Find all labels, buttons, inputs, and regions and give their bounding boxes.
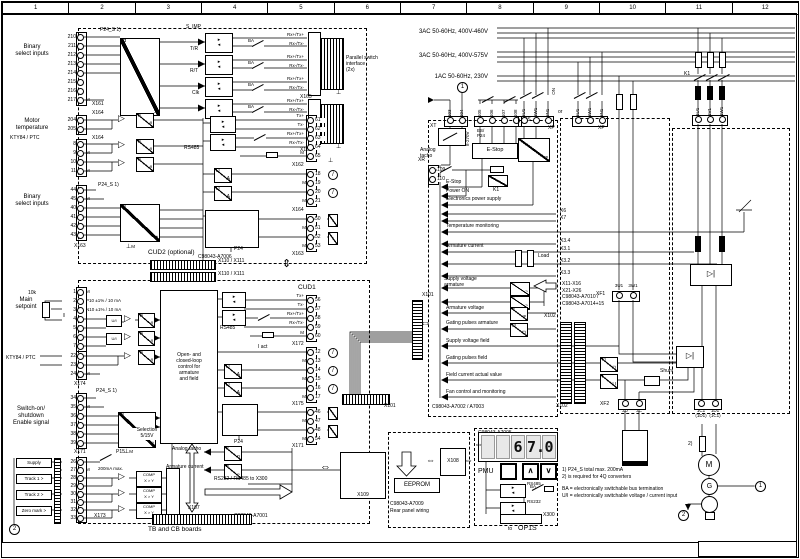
terminal-strip-1u1: 1U11V11W1 (692, 103, 728, 123)
terminal: 28 (62, 474, 90, 482)
pulse-encoder-icon (701, 496, 718, 513)
rs485-transceiver (210, 134, 236, 151)
motor-temperature-label: Motor temperature (6, 118, 58, 132)
k1-resistor (490, 166, 504, 173)
xref-x7: X7 (560, 216, 566, 222)
terminal-circle (77, 307, 84, 314)
terminal: M53 (294, 242, 327, 251)
terminal: 1C1(1D1) (694, 400, 708, 419)
encoder-shaft (705, 512, 715, 520)
transceiver-block (205, 55, 233, 75)
xref-x11-x16: X11-X16 (562, 282, 581, 288)
termination-resistor (266, 152, 278, 158)
op1s-label: OP1S (518, 525, 537, 533)
terminal-circle (77, 34, 84, 41)
pmu-down-button: ∨ (540, 463, 557, 480)
rx-tx-minus: Rx-/Tx- (264, 107, 304, 112)
encoder-zeromark-label: Zero mark > (16, 506, 52, 516)
terminal: 52 (294, 233, 327, 242)
seven-segment-digit: 7. (526, 435, 541, 459)
dac-block: DA (224, 382, 242, 397)
terminal: 2P10 ±1% / 10 mA (62, 297, 121, 306)
terminal-circle (77, 205, 84, 212)
comparator-block: COMPX > Y (136, 471, 162, 487)
terminal: 211 (62, 42, 90, 51)
connector-x164-label-a: X164 (92, 111, 104, 117)
terminal-circle (77, 404, 84, 411)
rx-tx-plus: Rx+/Tx+ (264, 32, 304, 37)
connector-x300 (500, 514, 542, 524)
kty84-ptc-label: KTY84 / PTC (10, 136, 39, 142)
connector-x173-label: X173 (94, 514, 106, 520)
xref-x21-x26: X21-X26 (562, 289, 581, 295)
terminal-circle (77, 150, 84, 157)
ba-label: BA (248, 82, 254, 87)
terminal: 213 (62, 60, 90, 69)
ribbon-x102 (560, 322, 572, 404)
binary-select-inputs-label-2: Binary select inputs (6, 194, 58, 208)
terminal-circle (77, 413, 84, 420)
load-resistor (515, 250, 522, 267)
electronics-supply-row-label: Electronics power supply (446, 197, 501, 203)
terminal-circle (77, 141, 84, 148)
terminal-strip-x174b: 222324M (62, 352, 90, 379)
gating-pulses-armature-label: Gating pulses armature (446, 321, 498, 327)
terminal: 22 (62, 352, 90, 361)
voltage-sense-block: ~~ (510, 282, 530, 296)
terminal: 1V1 (704, 103, 716, 123)
tb-cb-boards-label: TB and CB boards (148, 526, 201, 533)
terminal: 65 (294, 152, 327, 161)
terminal: 3W1 (626, 280, 640, 299)
rs485-transceiver (500, 484, 526, 498)
terminal-circle (307, 324, 314, 331)
ground-icon: ⊥ (336, 144, 341, 150)
terminal-circle (307, 394, 314, 401)
fuse-icon (707, 52, 714, 68)
terminal-circle (77, 126, 84, 133)
terminal: 10 (62, 158, 90, 167)
connector-x164-label-b: X164 (92, 136, 104, 142)
commutation-reactor (719, 86, 725, 100)
terminal: 59 (294, 323, 327, 332)
xref-x34: X3.4 (560, 239, 570, 245)
armature-current-label: Armature current (166, 465, 204, 471)
rx-tx-plus: Rx+/Tx+ (264, 54, 304, 59)
or-label: or (558, 110, 562, 116)
terminal-circle (77, 459, 84, 466)
terminal: 20 (294, 188, 327, 197)
armature-current-row-label: Armature current (446, 244, 484, 250)
terminal-circle (429, 176, 436, 183)
terminal-circle (77, 431, 84, 438)
motor-icon: M (698, 454, 720, 476)
amplifier-icon (118, 504, 125, 513)
meter-icon (328, 384, 338, 394)
signal-rt-label: R/T (190, 69, 198, 75)
fan-control-label: Fan control and monitoring (446, 390, 505, 396)
circled-2-icon: 2 (9, 524, 20, 535)
p24-label-2: P24 (234, 440, 243, 446)
terminal-circle (77, 334, 84, 341)
transceiver-block (205, 77, 233, 97)
ribbon-x101 (342, 394, 390, 405)
terminal-circle (307, 144, 314, 151)
amplifier-icon (118, 158, 125, 167)
binary-input-squarer: ⊓⊓ (120, 204, 160, 242)
terminal-strip-x161: 210211212213214215216217M (62, 33, 90, 105)
terminal-circle (77, 214, 84, 221)
terminal-strip-x163-out: 50M5152M53 (294, 215, 327, 251)
board-label-a7010-sub: C98043-A7014+15 (562, 302, 604, 308)
signal-tr-label: T/R (190, 47, 198, 53)
terminal: 5N1 (596, 104, 608, 124)
tacho-adc-block: #n (224, 446, 242, 461)
control-core-block: Open- and closed-loop control for armatu… (160, 290, 218, 444)
note-2: 2) is required for 4Q converters (562, 475, 631, 481)
relay-coil-icon (328, 214, 338, 227)
terminal: 5W1 (530, 104, 542, 124)
rs232-label: RS232 (527, 499, 541, 504)
encoder-supply-label: Supply (16, 458, 52, 468)
terminal: 5U1 (572, 104, 584, 124)
current-transformer (695, 236, 701, 252)
rx-tx-minus: Rx-/Tx- (264, 63, 304, 68)
rs485-transceiver (222, 292, 246, 308)
connector-x108: X108 (440, 448, 466, 476)
terminal-circle (307, 306, 314, 313)
ribbon-x110-x111 (150, 260, 216, 270)
terminal: 64 (294, 143, 327, 152)
terminal: 34 (62, 394, 90, 403)
ribbon-x110-x111 (150, 272, 216, 282)
terminal-circle (429, 167, 436, 174)
terminal-circle (77, 187, 84, 194)
terminal-circle (307, 198, 314, 205)
terminal-circle (77, 440, 84, 447)
relay-driver-block (205, 210, 259, 248)
adc-block: n# (136, 139, 154, 154)
terminal-circle (77, 232, 84, 239)
terminal-circle (307, 427, 314, 434)
seven-segment-digit: 0 (542, 435, 556, 459)
supply-voltage-field-label: Supply voltage field (446, 339, 489, 345)
shunt-label: Shunt (660, 369, 673, 375)
terminal-circle (307, 436, 314, 443)
tacho-scaling-block (438, 128, 466, 146)
comparator-block: COMPX > Y (136, 487, 162, 503)
terminal: 1W1 (716, 103, 728, 123)
es-p24-label: ES/ P24 (477, 128, 485, 138)
ribbon-x107 (152, 514, 252, 525)
terminal-circle (77, 61, 84, 68)
terminal-circle (616, 292, 623, 299)
terminal-strip-xf2: 3D3C (618, 400, 646, 414)
bus-arrow-icon: ⇔ (474, 440, 483, 449)
adc-block: n# (136, 113, 154, 128)
connector-x102-label-b: X102 (556, 404, 568, 410)
terminal-strip-x164-out: 18M1920M21 (294, 170, 327, 206)
terminal: M15 (294, 375, 327, 384)
terminal: 210 (62, 33, 90, 42)
terminal-circle (719, 116, 726, 123)
ground-icon: ⊥M (124, 449, 133, 455)
terminal-circle (77, 491, 84, 498)
rs485-transceiver (222, 310, 246, 326)
terminal-strip-xp2: 5U15W15N1 (572, 104, 608, 124)
terminal-circle (545, 117, 552, 124)
terminal: 30 (62, 490, 90, 498)
terminal-strip-x164-temp: 204205 (62, 116, 86, 134)
mains-1ac-230-label: 1AC 50-60Hz, 230V (408, 74, 488, 81)
ba-label: BA (530, 484, 536, 489)
terminal: 12 (294, 348, 327, 357)
iact-label: I act (258, 345, 267, 351)
p24-label: P24 (234, 247, 243, 253)
terminal-circle (521, 117, 528, 124)
shunt-resistor (644, 376, 660, 386)
terminal: 57 (294, 305, 327, 314)
circled-2-icon: 2 (678, 510, 689, 521)
terminal: 48 (294, 426, 327, 435)
parallel-interface-label: Parallel switch interface (2x) (346, 56, 378, 73)
connector-x101-label-b: X101 (422, 293, 434, 299)
terminal-circle (77, 298, 84, 305)
connector-xt-label: XT (430, 124, 436, 130)
estop-row-label: E-Stop (446, 180, 461, 186)
note-ba: BA = electronically switchable bus termi… (562, 487, 663, 493)
terminal-circle (77, 79, 84, 86)
terminal: 39 (62, 439, 90, 448)
connector-xp2-label: XP (598, 126, 605, 132)
note-ui: U/I = electronically switchable voltage … (562, 494, 677, 500)
connector-xf1-label: XF1 (596, 292, 605, 298)
terminal-strip-x171-in: 3435M36373839 (62, 394, 90, 448)
terminal: 110 (416, 175, 449, 184)
field-current-block: fU (600, 374, 618, 389)
terminal-circle (77, 353, 84, 360)
terminal-circle (77, 422, 84, 429)
dac-block: DA (214, 168, 232, 183)
terminal-circle (707, 116, 714, 123)
seven-segment-digit (481, 435, 495, 459)
power-on-row-label: Power ON (446, 189, 469, 195)
connector-x101-label-a: X101 (384, 404, 396, 410)
terminal-circle (77, 52, 84, 59)
terminal: 42 (62, 222, 90, 231)
terminal-circle (307, 376, 314, 383)
connector-x162-label: X162 (292, 163, 304, 169)
field-winding (622, 430, 648, 466)
terminal-circle (77, 88, 84, 95)
meter-icon (328, 188, 338, 198)
terminal: 3C (632, 400, 646, 414)
terminal-circle (477, 117, 484, 124)
encoder-shield (54, 458, 61, 524)
encoder-track1-label: Track 1 > (16, 474, 52, 484)
terminal: 18 (294, 170, 327, 179)
connector-x102-label-a: X102 (544, 314, 556, 320)
dac-block: DA (224, 364, 242, 379)
terminal: 36 (62, 412, 90, 421)
terminal-circle (712, 400, 719, 407)
terminal: 8 (62, 140, 90, 149)
armature-voltage-label: Armature voltage (446, 306, 484, 312)
pmu-label: PMU (478, 468, 494, 476)
terminal-circle (77, 483, 84, 490)
adc-block: n# (136, 157, 154, 172)
rs485-transceiver (210, 116, 236, 133)
power-supply-block: ~= (518, 138, 550, 162)
temperature-monitoring-row-label: Temperature monitoring (446, 224, 499, 230)
commutation-reactor (695, 86, 701, 100)
terminal-circle (447, 117, 454, 124)
meter-icon (328, 170, 338, 180)
terminal-strip-x162: 6162636465 (294, 116, 327, 161)
connector-x110-label-2: X110 / X111 (218, 272, 244, 278)
connector-x171-label-a: X171 (74, 450, 86, 456)
commutation-reactor (707, 86, 713, 100)
terminal: 44 (62, 186, 90, 195)
terminal-circle (77, 97, 84, 104)
relay-driver-block-2 (222, 404, 258, 436)
pmu-up-button: ∧ (522, 463, 539, 480)
terminal-circle (77, 371, 84, 378)
terminal-strip-xt: 103104 (444, 104, 468, 124)
terminal-circle (630, 292, 637, 299)
terminal: 205 (62, 125, 86, 134)
gating-pulse-block: ⊓⊓ (510, 323, 528, 337)
terminal-circle (307, 135, 314, 142)
connector-x109: X109 (340, 452, 386, 499)
terminal: 32 (62, 506, 90, 514)
xref-x6: X6 (560, 209, 566, 215)
terminal: 106 (486, 104, 498, 124)
terminal: 212 (62, 51, 90, 60)
terminal-circle (77, 362, 84, 369)
terminal-circle (307, 333, 314, 340)
xref-x33: X3.3 (560, 271, 570, 277)
connector-x110-label: X110 / X111 (218, 259, 244, 265)
tacho-range-label: 8-270V (466, 128, 471, 146)
field-gating-block: ⊓⊓ (600, 357, 618, 372)
terminal-circle (77, 168, 84, 175)
armature-thyristor-bridge (690, 264, 732, 286)
connector-x174-label: X174 (74, 382, 86, 388)
transceiver-block (205, 33, 233, 53)
fuse-icon (699, 436, 706, 452)
terminal: 40 (62, 204, 90, 213)
terminal: 107 (498, 104, 510, 124)
xref-x31: X3.1 (560, 247, 570, 253)
terminal-circle (77, 467, 84, 474)
connector-x175-label: X175 (292, 402, 304, 408)
terminal: M47 (294, 417, 327, 426)
terminal-circle (575, 117, 582, 124)
terminal: 1M (62, 288, 121, 297)
board-label-cud1: CUD1 (298, 284, 316, 291)
terminal: M21 (294, 197, 327, 206)
terminal-circle (622, 400, 629, 407)
terminal-circle (77, 515, 84, 522)
armature-voltage-block: == (510, 307, 528, 321)
terminal: 61 (294, 116, 327, 125)
bus-arrow-icon: ⇔ (464, 456, 473, 465)
terminal-circle (77, 343, 84, 350)
terminal-strip-x175: 12M1314M1516M17 (294, 348, 327, 402)
board-label-a7009: C98043-A7009 (390, 502, 424, 508)
connector-xp1-label: XP (548, 126, 555, 132)
relay-coil-icon (328, 232, 338, 245)
terminal: 24M (62, 370, 90, 379)
terminal-circle (77, 395, 84, 402)
terminal-circle (307, 117, 314, 124)
terminal-circle (307, 189, 314, 196)
seven-segment-digit: 6 (511, 435, 525, 459)
supply-voltage-armature-label: Supply voltage armature (444, 277, 477, 289)
ribbon-x101-vertical (412, 300, 423, 360)
terminal-circle (307, 243, 314, 250)
terminal: 214 (62, 69, 90, 78)
terminal: 11M (62, 167, 90, 176)
on-label: ON (552, 88, 557, 95)
terminal-circle (77, 117, 84, 124)
terminal-circle (307, 367, 314, 374)
ba-label: BA (248, 38, 254, 43)
k1-label: K1 (493, 188, 499, 194)
current-transformer (719, 236, 725, 252)
load-resistor (527, 250, 534, 267)
terminal: 41 (62, 213, 90, 222)
terminal: 1U1 (692, 103, 704, 123)
terminal-circle (307, 349, 314, 356)
terminal-strip-xp1: 5U15W15N1 (518, 104, 554, 124)
bus-arrow-icon: ⇕ (282, 259, 291, 270)
terminal: 23 (62, 361, 90, 370)
terminal: 3N10 ±1% / 10 mA (62, 306, 121, 315)
terminal: 5N1 (542, 104, 554, 124)
terminal-strip-1c1-1d1: 1C1(1D1)1D1(1C1) (694, 400, 722, 419)
terminal: 14 (294, 366, 327, 375)
note-1: 1) P24_S total max. 200mA (562, 468, 623, 474)
terminal: 31 (62, 498, 90, 506)
amplifier-icon (124, 351, 131, 360)
xref-x32: X3.2 (560, 259, 570, 265)
ui-switch-block: U/I (106, 315, 122, 327)
ground-icon: ⊥ (336, 90, 341, 96)
terminal-circle (587, 117, 594, 124)
terminal: 204 (62, 116, 86, 125)
seven-segment-digit (496, 435, 510, 459)
terminal-circle (501, 117, 508, 124)
connector-x107-label: X107 (188, 506, 200, 512)
connector-x163-label-b: X163 (292, 252, 304, 258)
k1-contactor-label: K1 (684, 72, 690, 78)
mains-3ac-575-label: 3AC 50-60Hz, 400V-575V (408, 53, 488, 60)
eeprom-block: EEPROM (394, 478, 440, 493)
rs485-label-2: RS485 (220, 326, 235, 332)
termination-resistor (544, 486, 554, 492)
k1-coil (488, 175, 508, 187)
amplifier-icon (124, 332, 131, 341)
terminal-circle (307, 216, 314, 223)
terminal: 37 (62, 421, 90, 430)
terminal-circle (307, 180, 314, 187)
connector-x165-label: X165 (300, 95, 312, 101)
amplifier-icon (118, 140, 125, 149)
terminal-circle (77, 499, 84, 506)
bus-arrow-icon: ⇔ (420, 318, 431, 329)
